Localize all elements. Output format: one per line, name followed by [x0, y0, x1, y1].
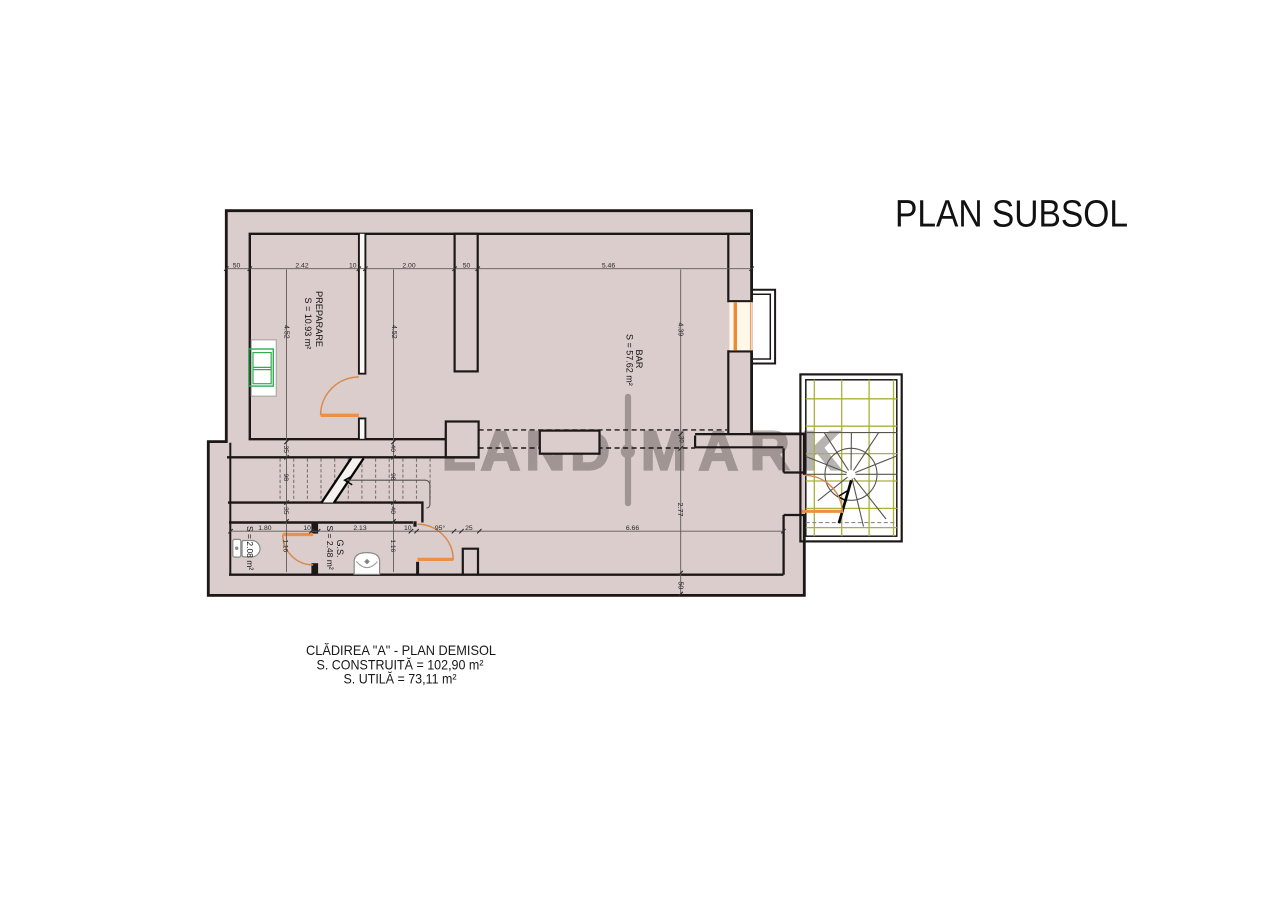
svg-text:30: 30 — [677, 436, 683, 443]
svg-text:98: 98 — [389, 473, 396, 481]
svg-text:G.S.: G.S. — [335, 540, 345, 558]
svg-text:10: 10 — [404, 525, 412, 532]
svg-text:5.46: 5.46 — [602, 262, 615, 269]
svg-text:2.77: 2.77 — [676, 503, 685, 517]
svg-text:4.52: 4.52 — [390, 325, 397, 339]
svg-text:2.00: 2.00 — [402, 262, 415, 269]
svg-text:1.16: 1.16 — [282, 540, 289, 553]
svg-text:95°: 95° — [435, 524, 446, 532]
svg-text:S = 2.48 m²: S = 2.48 m² — [325, 526, 335, 570]
svg-text:4.52: 4.52 — [282, 325, 289, 339]
svg-text:10: 10 — [349, 262, 357, 269]
svg-text:2.13: 2.13 — [353, 525, 366, 532]
svg-text:2.42: 2.42 — [295, 262, 308, 269]
svg-text:40: 40 — [389, 507, 396, 515]
svg-text:S = 57.62 m²: S = 57.62 m² — [624, 334, 634, 386]
svg-text:PREPARARE: PREPARARE — [314, 291, 324, 347]
svg-text:25: 25 — [465, 525, 473, 532]
svg-text:6.66: 6.66 — [626, 525, 639, 532]
svg-text:40: 40 — [389, 445, 396, 453]
svg-text:1.16: 1.16 — [389, 540, 396, 553]
svg-text:1.80: 1.80 — [258, 525, 271, 532]
svg-text:4.39: 4.39 — [677, 323, 684, 337]
svg-text:50: 50 — [676, 582, 683, 590]
svg-text:BAR: BAR — [634, 350, 644, 369]
svg-text:S. UTILĂ = 73,11 m²: S. UTILĂ = 73,11 m² — [344, 670, 457, 686]
svg-text:10: 10 — [303, 525, 311, 532]
svg-text:PLAN SUBSOL: PLAN SUBSOL — [895, 194, 1128, 236]
svg-text:35: 35 — [282, 507, 289, 515]
svg-text:98: 98 — [282, 474, 289, 482]
svg-text:35: 35 — [282, 446, 289, 454]
svg-text:50: 50 — [233, 262, 241, 269]
svg-text:S = 10.93 m²: S = 10.93 m² — [303, 298, 313, 350]
svg-text:S = 2.08 m²: S = 2.08 m² — [245, 526, 255, 570]
svg-text:50: 50 — [463, 262, 471, 269]
